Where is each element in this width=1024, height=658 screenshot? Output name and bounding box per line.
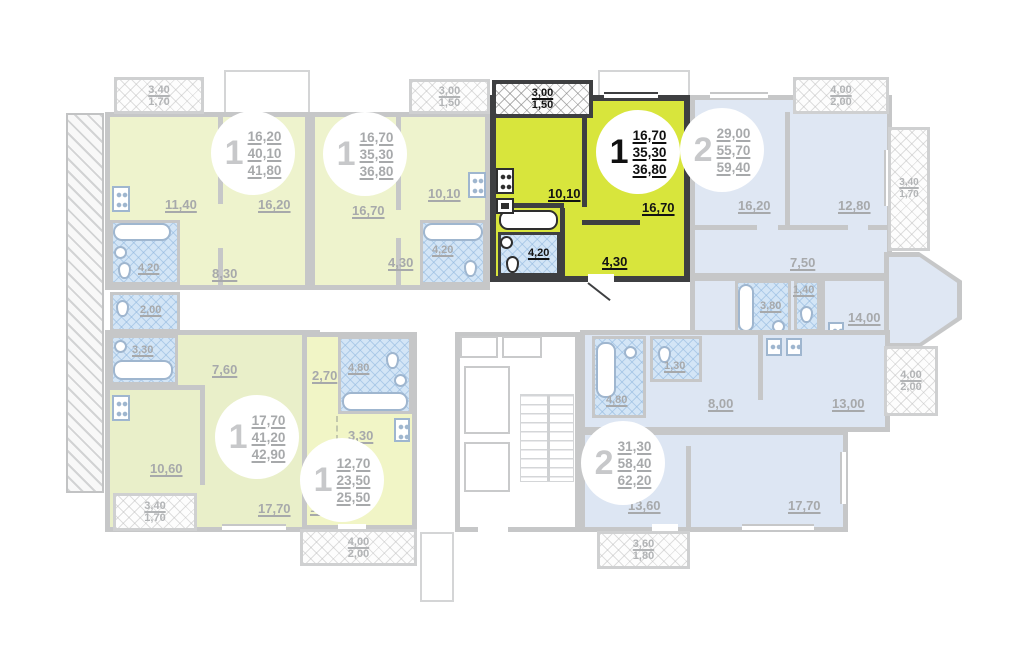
interior-wall xyxy=(778,225,848,230)
room-count: 1 xyxy=(229,418,248,457)
bathtub-icon xyxy=(596,342,616,398)
balcony-label: 3,60 1,80 xyxy=(633,538,654,562)
bathtub-icon xyxy=(113,223,171,241)
area-living: 29,00 xyxy=(717,125,751,142)
area-values: 16,20 40,10 41,80 xyxy=(248,128,282,179)
room-area-label-bath: 3,30 xyxy=(132,344,153,356)
area-net: 55,70 xyxy=(717,142,751,159)
interior-wall xyxy=(560,208,565,282)
balcony-area-reduced: 1,70 xyxy=(144,512,165,524)
area-total: 62,20 xyxy=(618,472,652,489)
interior-wall xyxy=(686,446,691,532)
balcony-area: 3,00 xyxy=(439,85,460,97)
sink-icon xyxy=(394,374,407,387)
room-count: 1 xyxy=(314,461,333,500)
apartment-badge: 1 16,70 35,30 36,80 xyxy=(323,112,407,196)
interior-wall xyxy=(695,225,757,230)
bathtub-icon xyxy=(113,360,173,380)
room-area-label-living: 16,20 xyxy=(738,198,771,213)
sink-counter-icon xyxy=(786,338,802,356)
room-area-label-hall: 4,30 xyxy=(602,254,627,269)
room-area-label-kitchen: 13,00 xyxy=(832,396,865,411)
balcony-area: 3,60 xyxy=(633,538,654,550)
balcony-a7-side: 4,00 2,00 xyxy=(884,346,938,416)
adjacent-section-hatch xyxy=(66,113,104,493)
balcony-area: 3,40 xyxy=(148,84,169,96)
balcony-area: 3,00 xyxy=(532,87,553,99)
interior-wall xyxy=(868,225,890,230)
balcony-a7-bottom: 3,60 1,80 xyxy=(597,531,690,569)
area-net: 35,30 xyxy=(633,144,667,161)
room-area-label-wardrobe: 1,40 xyxy=(793,284,814,296)
door-leaf xyxy=(587,282,610,301)
window xyxy=(742,524,814,532)
apartment-badge: 1 16,20 40,10 41,80 xyxy=(211,111,295,195)
elevator xyxy=(464,366,510,434)
room-count: 1 xyxy=(610,133,629,172)
area-total: 42,90 xyxy=(252,446,286,463)
area-total: 36,80 xyxy=(360,163,394,180)
room-area-label-kitchen: 10,10 xyxy=(428,186,461,201)
room-area-label-living: 16,70 xyxy=(642,200,675,215)
balcony-area: 4,00 xyxy=(348,536,369,548)
balcony-label: 3,40 1,70 xyxy=(144,500,165,524)
room-area-label-bath: 4,20 xyxy=(138,262,159,274)
balcony-a4-top: 4,00 2,00 xyxy=(793,77,889,114)
room-area-label-hall: 8,00 xyxy=(708,396,733,411)
room-area-label-hall: 7,50 xyxy=(790,255,815,270)
sink-icon xyxy=(114,340,127,353)
balcony-area: 4,00 xyxy=(900,369,921,381)
stove-icon xyxy=(394,418,410,442)
bathtub-icon xyxy=(738,284,754,332)
balcony-label: 4,00 2,00 xyxy=(900,369,921,393)
room-area-label-kitchen: 10,10 xyxy=(548,186,581,201)
room-area-label-hall: 4,30 xyxy=(388,255,413,270)
interior-wall xyxy=(758,330,763,400)
stove-icon xyxy=(766,338,782,356)
floor-plan: 11,40 16,20 8,30 4,20 1 16,20 40,10 41,8… xyxy=(0,0,1024,658)
area-net: 41,20 xyxy=(252,429,286,446)
window xyxy=(710,92,768,100)
area-total: 36,80 xyxy=(633,161,667,178)
balcony-area-reduced: 1,70 xyxy=(148,96,169,108)
area-living: 16,70 xyxy=(633,127,667,144)
window xyxy=(222,524,286,532)
interior-wall xyxy=(785,112,790,227)
room-area-label-bath: 3,80 xyxy=(760,300,781,312)
area-living: 17,70 xyxy=(252,412,286,429)
area-values: 31,30 58,40 62,20 xyxy=(618,438,652,489)
room-area-label-bath: 4,20 xyxy=(432,244,453,256)
window xyxy=(840,452,848,504)
balcony-label: 4,00 2,00 xyxy=(348,536,369,560)
bathtub-icon xyxy=(342,392,408,411)
area-living: 12,70 xyxy=(337,455,371,472)
room-area-label-bath: 4,80 xyxy=(348,362,369,374)
room-area-label-kitchen: 14,00 xyxy=(848,310,881,325)
area-values: 12,70 23,50 25,50 xyxy=(337,455,371,506)
room-area-label-bath: 4,80 xyxy=(606,394,627,406)
elevator xyxy=(464,442,510,492)
interior-wall xyxy=(110,385,205,390)
room-area-label-hall: 7,60 xyxy=(212,362,237,377)
wc-a7 xyxy=(650,336,702,382)
room-area-label-kitchen: 11,40 xyxy=(165,197,197,212)
room-count: 2 xyxy=(694,131,713,170)
balcony-area-reduced: 2,00 xyxy=(900,381,921,393)
balcony-label: 4,00 2,00 xyxy=(830,84,851,108)
balcony-a4-side: 3,40 1,70 xyxy=(888,127,930,251)
apartment-badge: 1 17,70 41,20 42,90 xyxy=(215,395,299,479)
sink-icon xyxy=(500,236,513,249)
service-shaft xyxy=(460,336,498,358)
room-area-label-living: 16,20 xyxy=(258,197,291,212)
area-net: 35,30 xyxy=(360,146,394,163)
window xyxy=(604,92,658,100)
sink-icon xyxy=(114,246,127,259)
room-count: 2 xyxy=(595,444,614,483)
room-area-label-wc: 1,30 xyxy=(664,360,685,372)
apartment-badge: 2 29,00 55,70 59,40 xyxy=(680,108,764,192)
balcony-area: 3,40 xyxy=(144,500,165,512)
sink-icon xyxy=(624,346,637,359)
balcony-label: 3,00 1,50 xyxy=(532,87,553,111)
room-area-label-living: 17,70 xyxy=(258,501,291,516)
apartment-badge: 2 31,30 58,40 62,20 xyxy=(581,421,665,505)
balcony-label: 3,40 1,70 xyxy=(899,177,918,201)
room-area-label-bedroom: 12,80 xyxy=(838,198,871,213)
entrance-vestibule xyxy=(420,532,454,602)
area-total: 41,80 xyxy=(248,162,282,179)
interior-wall xyxy=(200,385,205,485)
balcony-area-reduced: 2,00 xyxy=(830,96,851,108)
area-total: 25,50 xyxy=(337,489,371,506)
stove-icon xyxy=(112,395,130,421)
room-area-label-kitchen: 10,60 xyxy=(150,461,183,476)
room-count: 1 xyxy=(337,135,356,174)
entrance-door-gap xyxy=(588,274,614,283)
apartment-badge: 1 12,70 23,50 25,50 xyxy=(300,438,384,522)
balcony-area: 4,00 xyxy=(830,84,851,96)
balcony-label: 3,00 1,50 xyxy=(439,85,460,109)
room-area-label-wc: 2,00 xyxy=(140,304,161,316)
room-area-label-bath: 4,20 xyxy=(528,247,549,259)
apartment-badge-selected: 1 16,70 35,30 36,80 xyxy=(596,110,680,194)
bathtub-icon xyxy=(423,223,483,241)
upper-structure-outline xyxy=(224,70,310,114)
area-net: 23,50 xyxy=(337,472,371,489)
balcony-a2: 3,00 1,50 xyxy=(409,79,490,114)
balcony-a3-selected: 3,00 1,50 xyxy=(492,80,593,118)
balcony-area-reduced: 1,80 xyxy=(633,550,654,562)
oven-icon xyxy=(496,198,514,214)
area-values: 16,70 35,30 36,80 xyxy=(360,129,394,180)
area-living: 31,30 xyxy=(618,438,652,455)
area-values: 17,70 41,20 42,90 xyxy=(252,412,286,463)
room-count: 1 xyxy=(225,134,244,173)
core-door-gap xyxy=(478,526,508,534)
area-net: 58,40 xyxy=(618,455,652,472)
stove-icon xyxy=(496,168,514,194)
area-values: 29,00 55,70 59,40 xyxy=(717,125,751,176)
room-area-label-hall: 8,30 xyxy=(212,266,237,281)
balcony-area-reduced: 2,00 xyxy=(348,548,369,560)
balcony-label: 3,40 1,70 xyxy=(148,84,169,108)
balcony-a1: 3,40 1,70 xyxy=(114,77,204,114)
service-shaft xyxy=(502,336,542,358)
balcony-area: 3,40 xyxy=(899,177,918,188)
balcony-area-reduced: 1,50 xyxy=(532,99,553,111)
room-area-label-hall: 2,70 xyxy=(312,368,337,383)
area-living: 16,20 xyxy=(248,128,282,145)
balcony-a6: 4,00 2,00 xyxy=(300,529,417,566)
area-total: 59,40 xyxy=(717,159,751,176)
balcony-area-reduced: 1,50 xyxy=(439,97,460,109)
stove-icon xyxy=(112,186,130,212)
balcony-area-reduced: 1,70 xyxy=(899,189,918,200)
area-net: 40,10 xyxy=(248,145,282,162)
room-area-label-living: 16,70 xyxy=(352,203,385,218)
room-area-label-room2: 17,70 xyxy=(788,498,821,513)
balcony-a5: 3,40 1,70 xyxy=(113,493,197,531)
staircase xyxy=(520,394,574,482)
interior-wall xyxy=(582,220,640,225)
area-values: 16,70 35,30 36,80 xyxy=(633,127,667,178)
area-living: 16,70 xyxy=(360,129,394,146)
bay-window-inner xyxy=(889,257,957,343)
stove-icon xyxy=(468,172,486,198)
